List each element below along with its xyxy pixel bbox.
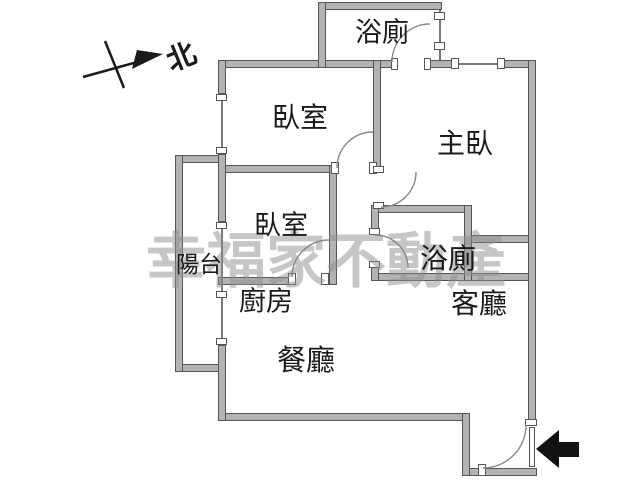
room-label-bathroom-2: 浴廁 — [420, 237, 476, 277]
plan-symbols — [0, 0, 640, 480]
room-label-kitchen: 廚房 — [239, 280, 293, 319]
room-label-dining-room: 餐廳 — [277, 337, 335, 379]
door-arc-bedroom-2 — [292, 240, 329, 277]
room-label-living-room: 客廳 — [451, 282, 507, 322]
door-arc-bedroom-1 — [337, 132, 373, 168]
door-arc-bathroom-2 — [375, 235, 408, 268]
room-label-bathroom-top: 浴廁 — [355, 11, 409, 50]
door-arc-entry — [483, 425, 526, 468]
room-label-master-bedroom: 主臥 — [437, 122, 493, 162]
door-arc-master — [381, 172, 416, 207]
north-compass — [83, 41, 141, 88]
room-label-bedroom-2: 臥室 — [254, 204, 308, 243]
floor-plan: 幸福家不動產 浴廁 臥室 主臥 臥室 陽台 廚房 浴廁 客廳 餐廳 北 — [0, 0, 640, 480]
entrance-arrow-icon — [536, 430, 579, 468]
room-label-balcony: 陽台 — [176, 245, 222, 279]
room-label-bedroom-1: 臥室 — [272, 96, 328, 136]
north-arrowhead — [132, 50, 163, 69]
